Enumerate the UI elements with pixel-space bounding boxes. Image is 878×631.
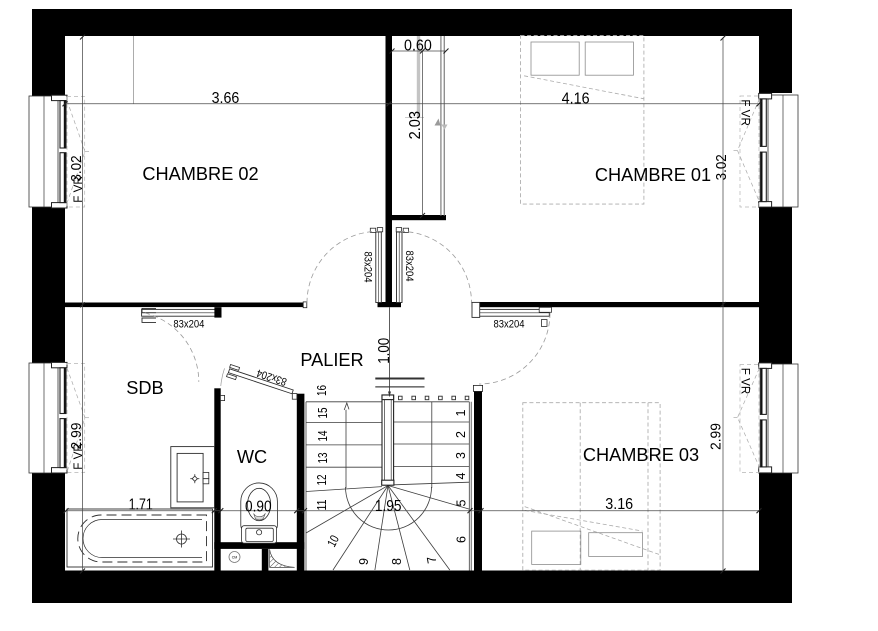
svg-text:6: 6 — [454, 536, 468, 543]
svg-text:0.90: 0.90 — [245, 498, 272, 515]
svg-text:83x204: 83x204 — [494, 319, 525, 331]
svg-text:9: 9 — [357, 557, 372, 565]
svg-text:12: 12 — [315, 474, 329, 485]
svg-text:83x204: 83x204 — [173, 319, 204, 331]
svg-text:2.03: 2.03 — [407, 111, 424, 139]
svg-text:4.16: 4.16 — [562, 90, 590, 107]
svg-text:13: 13 — [316, 452, 330, 463]
svg-text:F VR: F VR — [73, 443, 85, 470]
svg-text:2: 2 — [454, 431, 468, 438]
svg-text:3.02: 3.02 — [713, 154, 730, 180]
svg-text:11: 11 — [315, 499, 329, 510]
svg-text:F VR: F VR — [73, 176, 85, 203]
svg-text:5: 5 — [454, 499, 468, 506]
svg-text:CM: CM — [232, 556, 238, 560]
svg-text:8: 8 — [390, 558, 404, 565]
svg-text:16: 16 — [315, 385, 329, 396]
svg-text:CHAMBRE 03: CHAMBRE 03 — [583, 445, 699, 465]
svg-text:PALIER: PALIER — [300, 350, 363, 370]
svg-text:15: 15 — [316, 407, 330, 418]
svg-text:1.71: 1.71 — [129, 496, 153, 513]
svg-text:1.95: 1.95 — [375, 498, 402, 515]
svg-text:1.00: 1.00 — [376, 337, 393, 363]
svg-text:WC: WC — [237, 447, 267, 467]
svg-text:2.99: 2.99 — [707, 423, 724, 450]
svg-text:4: 4 — [454, 472, 468, 479]
svg-text:14: 14 — [316, 430, 330, 441]
svg-text:CHAMBRE 02: CHAMBRE 02 — [142, 164, 258, 184]
svg-text:CHAMBRE 01: CHAMBRE 01 — [595, 165, 711, 185]
svg-text:F VR: F VR — [738, 368, 750, 395]
svg-text:3: 3 — [454, 452, 468, 459]
svg-text:3.66: 3.66 — [212, 90, 240, 107]
svg-text:SDB: SDB — [126, 378, 163, 398]
svg-text:83x204: 83x204 — [403, 251, 415, 282]
svg-text:F VR: F VR — [738, 99, 750, 126]
svg-text:3.16: 3.16 — [605, 496, 633, 513]
svg-text:1: 1 — [454, 409, 468, 416]
svg-text:83x204: 83x204 — [362, 252, 374, 283]
svg-text:0.60: 0.60 — [404, 37, 432, 54]
